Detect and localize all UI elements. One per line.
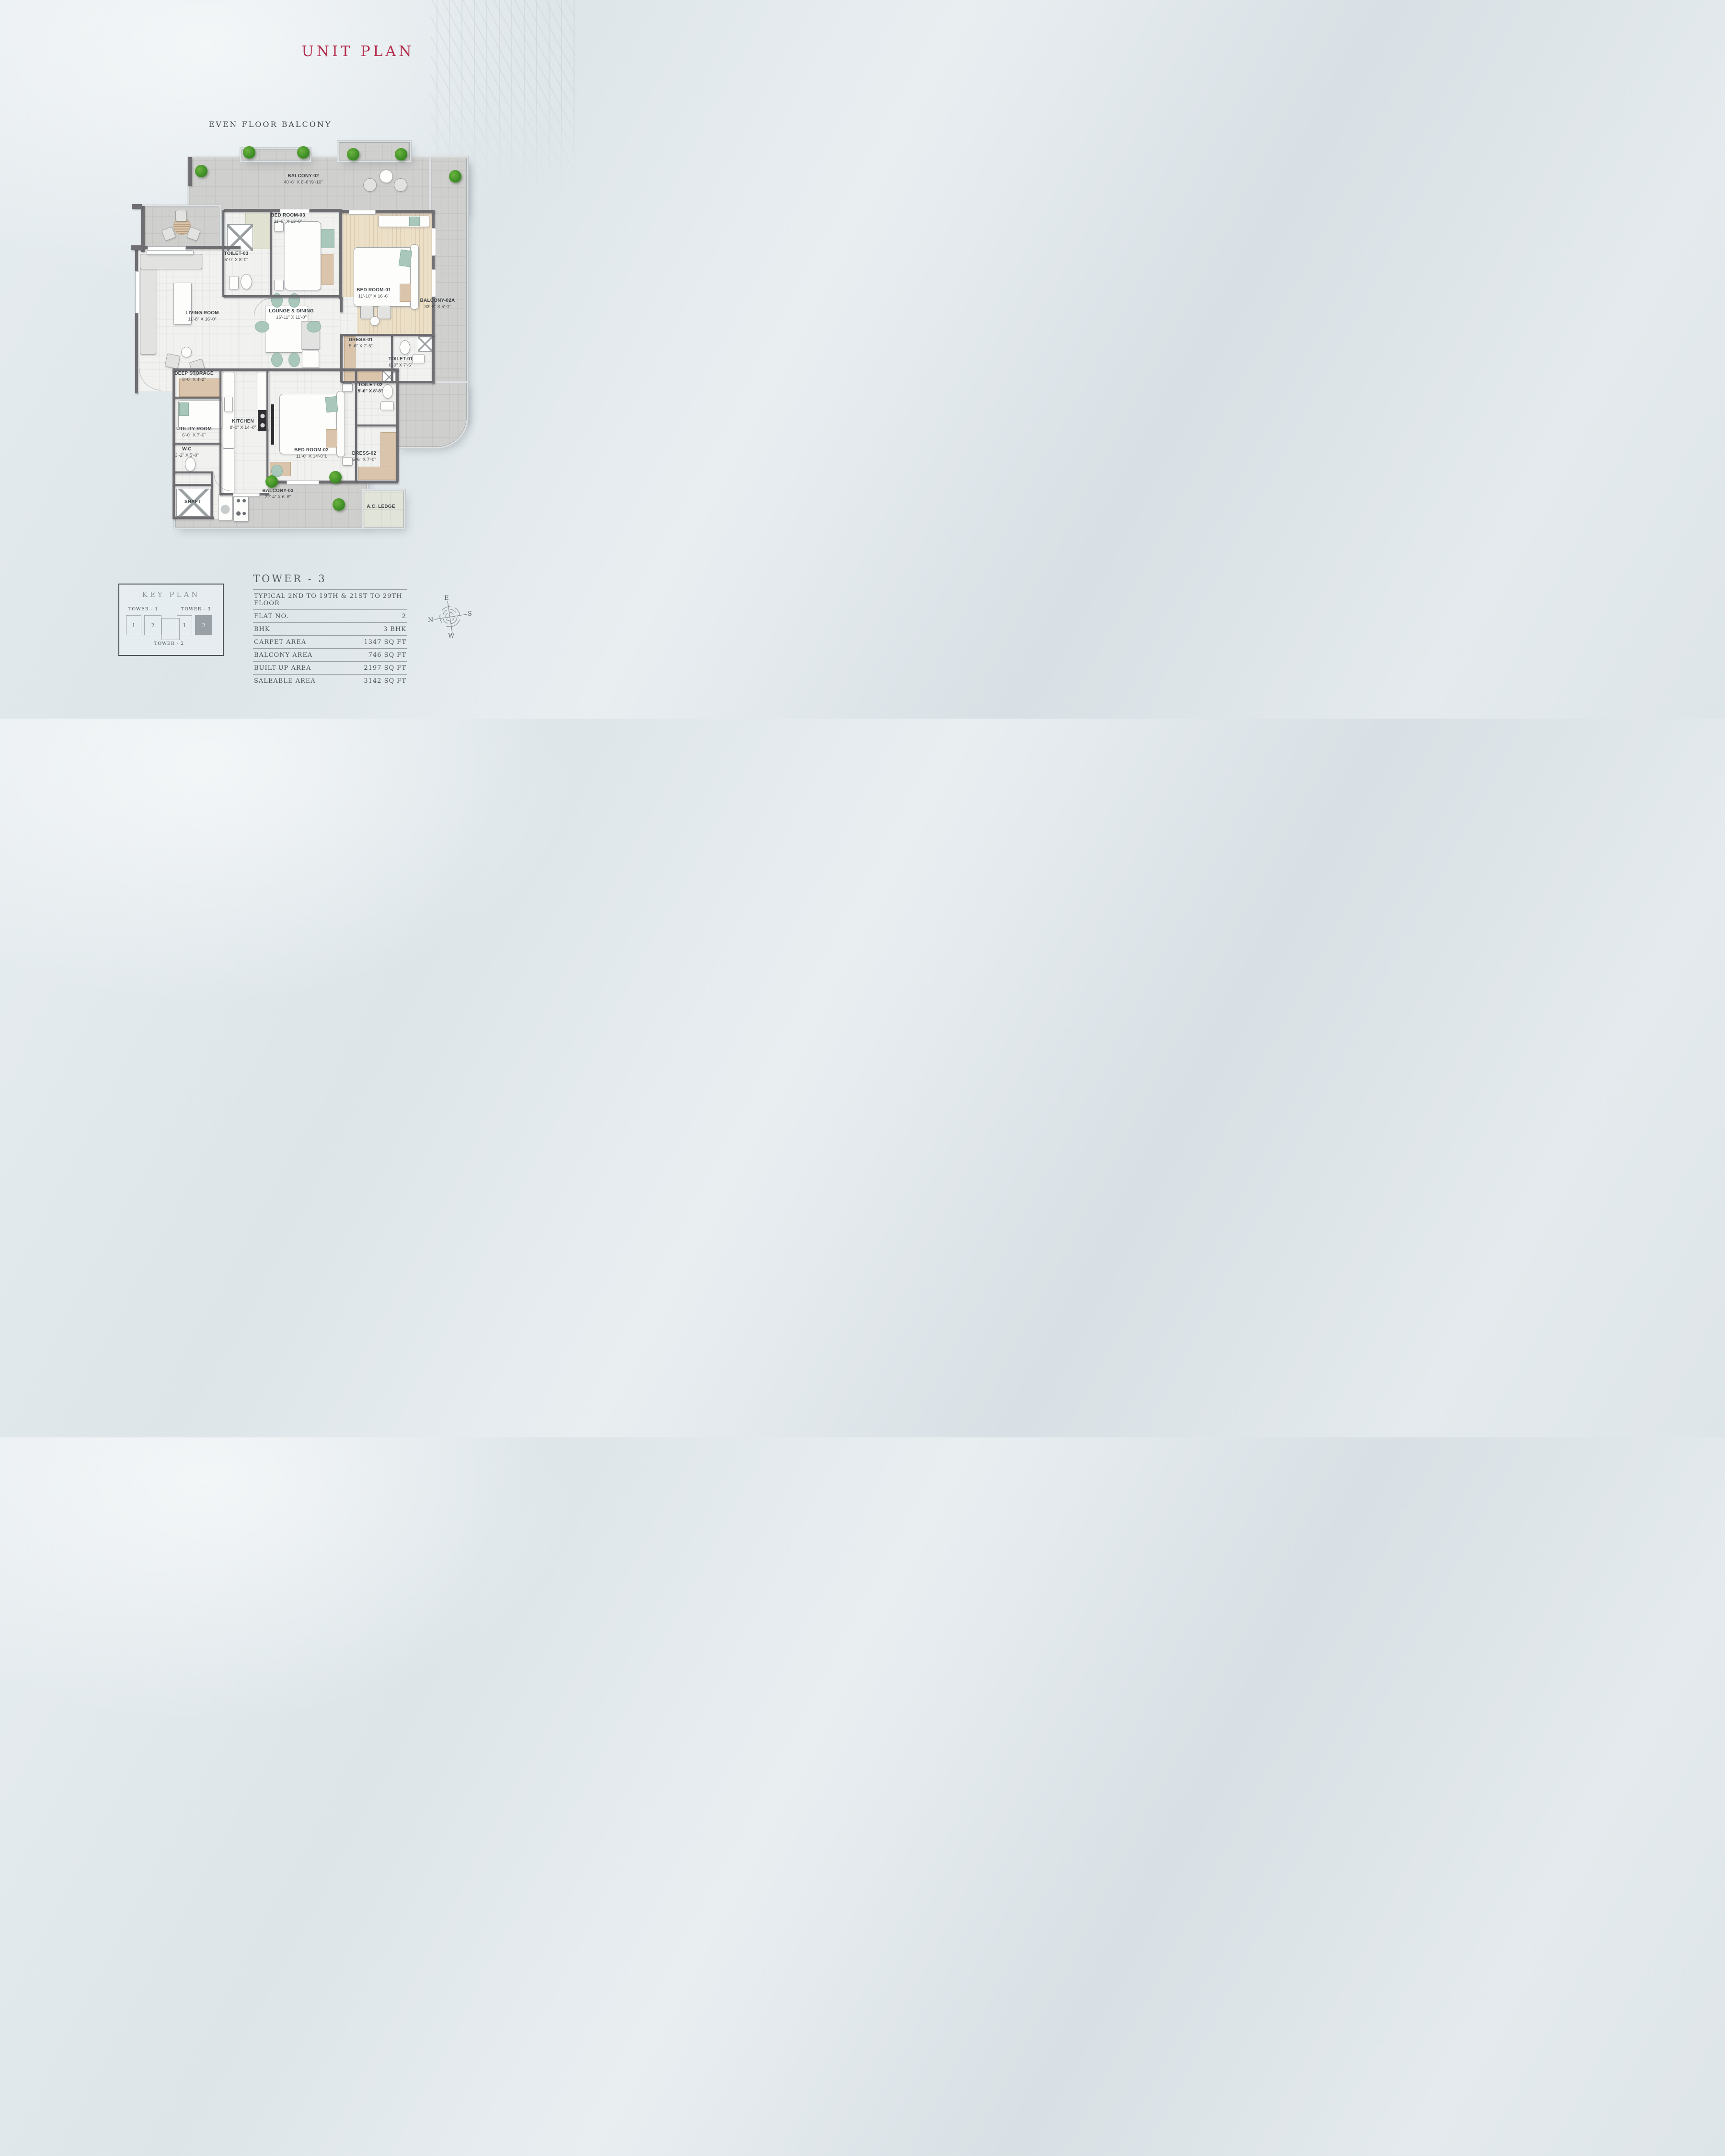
key-plan-tower-3-label: TOWER - 3 bbox=[181, 607, 211, 612]
table-row: TYPICAL 2ND TO 19TH & 21ST TO 29TH FLOOR bbox=[253, 589, 407, 609]
room-label-toilet-03: TOILET-035'-0" X 8'-0" bbox=[224, 251, 248, 263]
plant bbox=[329, 471, 342, 483]
key-plan-tower1-unit1: 1 bbox=[126, 615, 141, 635]
wall bbox=[173, 516, 214, 519]
wall bbox=[356, 424, 397, 426]
room-label-dress-01: DRESS-015'-6" X 7'-5" bbox=[349, 337, 373, 349]
room-label-bedroom-03: BED ROOM-0311'-0" X 13'-0" bbox=[271, 213, 305, 224]
wall bbox=[132, 204, 142, 209]
balcony-02-floor bbox=[189, 158, 466, 213]
unit-plan-page: { "page": { "title": "UNIT PLAN", "balco… bbox=[0, 0, 575, 719]
window bbox=[432, 228, 436, 256]
kitchen-sink bbox=[224, 397, 233, 412]
nightstand bbox=[342, 457, 353, 466]
plant bbox=[297, 146, 310, 159]
room-label-bedroom-01: BED ROOM-0111'-10" X 16'-6" bbox=[356, 287, 391, 299]
key-plan: KEY PLAN TOWER - 1 TOWER - 3 TOWER - 2 1… bbox=[118, 584, 224, 656]
wc-toilet bbox=[185, 457, 195, 471]
key-plan-tower1-unit2: 2 bbox=[144, 615, 161, 635]
table-row: FLAT NO.2 bbox=[253, 609, 407, 622]
wall bbox=[341, 334, 435, 336]
room-label-dress-02: DRESS-025'-6" X 7'-0" bbox=[352, 451, 377, 462]
pillow bbox=[326, 429, 337, 447]
table-row: SALEABLE AREA3142 SQ FT bbox=[253, 674, 407, 687]
sofa-sectional bbox=[140, 266, 156, 355]
wall bbox=[131, 245, 143, 250]
plant bbox=[395, 148, 407, 161]
window bbox=[349, 210, 376, 215]
room-label-shaft: SHAFT bbox=[184, 499, 201, 505]
side-table bbox=[370, 316, 379, 326]
room-label-wc: W.C3'-2" X 5'-0" bbox=[175, 447, 198, 458]
room-label-balcony-02: BALCONY-0240'-6" X 6'-6"/9'-10" bbox=[284, 173, 323, 185]
compass-icon: E S W N bbox=[428, 594, 472, 638]
wall bbox=[173, 471, 213, 473]
armchair bbox=[378, 306, 391, 319]
compass-south: S bbox=[468, 610, 472, 618]
key-plan-tower-2-label: TOWER - 2 bbox=[154, 641, 184, 646]
room-label-toilet-02: TOILET-025'-6" X 8'-8" bbox=[358, 382, 383, 394]
tower-title: TOWER - 3 bbox=[253, 573, 407, 585]
room-label-utility-room: UTILITY ROOM6'-0" X 7'-0" bbox=[176, 426, 212, 438]
wall bbox=[224, 295, 341, 298]
plant bbox=[333, 498, 345, 511]
plant bbox=[243, 146, 255, 159]
room-label-living-room: LIVING ROOM11'-8" X 16'-0" bbox=[185, 310, 218, 322]
wall bbox=[266, 369, 268, 482]
outdoor-chair bbox=[394, 178, 407, 192]
wall bbox=[211, 471, 213, 518]
room-label-lounge-dining: LOUNGE & DINING16'-11" X 11'-0" bbox=[269, 309, 314, 320]
window bbox=[287, 481, 319, 485]
cooktop-hob bbox=[258, 410, 267, 431]
plant bbox=[449, 170, 461, 183]
wall bbox=[188, 157, 192, 186]
sofa-sectional bbox=[140, 254, 202, 269]
room-label-deep-storage: DEEP STORAGE6'-0" X 4'-2" bbox=[174, 371, 214, 382]
outdoor-chair bbox=[363, 178, 377, 192]
dining-chair bbox=[288, 353, 300, 367]
wardrobe bbox=[358, 467, 397, 480]
washing-machine bbox=[218, 494, 232, 520]
room-label-bedroom-02: BED ROOM-0211'-0" X 14'-0"1 bbox=[294, 447, 329, 459]
compass-east: E bbox=[444, 595, 449, 602]
floor-plan: BALCONY-0240'-6" X 6'-6"/9'-10" BED ROOM… bbox=[120, 130, 474, 533]
bench-cushion bbox=[409, 217, 420, 226]
dining-chair bbox=[255, 321, 269, 333]
table-row: BUILT-UP AREA2197 SQ FT bbox=[253, 661, 407, 674]
plant bbox=[265, 475, 278, 488]
side-table bbox=[181, 347, 192, 357]
table-row: CARPET AREA1347 SQ FT bbox=[253, 635, 407, 648]
wall bbox=[340, 297, 343, 312]
wall bbox=[173, 484, 213, 486]
wash-basin bbox=[380, 401, 394, 410]
wc-toilet bbox=[382, 384, 393, 399]
key-plan-title: KEY PLAN bbox=[119, 590, 223, 599]
nightstand bbox=[342, 383, 353, 392]
storage-cabinet bbox=[302, 351, 319, 368]
balcony-corner-floor bbox=[398, 383, 466, 447]
room-label-balcony-02a: BALCONY-02A33'-6" X 5'-0" bbox=[420, 298, 455, 310]
room-label-toilet-01: TOILET-016'-0" X 7'-5" bbox=[388, 356, 413, 368]
table-row: BALCONY AREA746 SQ FT bbox=[253, 648, 407, 661]
pillow bbox=[325, 396, 338, 413]
armchair bbox=[164, 353, 180, 369]
shower bbox=[418, 336, 432, 352]
window bbox=[135, 271, 139, 313]
nightstand bbox=[274, 280, 284, 290]
wc-toilet bbox=[241, 274, 252, 289]
wall bbox=[270, 212, 272, 297]
dining-chair bbox=[307, 321, 321, 333]
room-label-kitchen: KITCHEN8'-0" X 14'-0" bbox=[230, 419, 256, 430]
wash-basin bbox=[412, 355, 425, 363]
key-plan-tower3-unit1: 1 bbox=[177, 615, 192, 635]
room-label-balcony-03: BALCONY-0322'-4" X 6'-6" bbox=[262, 488, 293, 500]
plant bbox=[195, 165, 207, 177]
dining-chair bbox=[271, 353, 283, 367]
window bbox=[432, 269, 436, 297]
pillow bbox=[400, 284, 411, 302]
wall bbox=[135, 246, 138, 393]
key-plan-tower-1-label: TOWER - 1 bbox=[128, 607, 158, 612]
pillow bbox=[179, 402, 189, 416]
wall bbox=[173, 397, 221, 399]
gas-stove bbox=[233, 493, 249, 522]
window bbox=[233, 493, 260, 497]
window bbox=[148, 246, 186, 251]
pillow bbox=[399, 249, 412, 267]
bed-headboard bbox=[336, 391, 345, 457]
wall bbox=[340, 334, 343, 382]
wash-basin bbox=[229, 276, 239, 289]
plant bbox=[347, 148, 359, 161]
page-title: UNIT PLAN bbox=[286, 43, 430, 60]
compass-north: N bbox=[428, 617, 433, 624]
wall bbox=[219, 369, 221, 495]
balcony-02a-floor bbox=[431, 158, 466, 421]
chair bbox=[175, 210, 187, 221]
unit-info-table: TOWER - 3 TYPICAL 2ND TO 19TH & 21ST TO … bbox=[253, 573, 407, 687]
compass-west: W bbox=[448, 632, 455, 638]
wardrobe bbox=[379, 216, 429, 227]
even-floor-balcony-heading: EVEN FLOOR BALCONY bbox=[198, 120, 342, 129]
wardrobe bbox=[321, 254, 333, 285]
key-plan-tower3-unit2-highlighted: 2 bbox=[195, 615, 212, 635]
table-row: BHK3 BHK bbox=[253, 622, 407, 635]
wall bbox=[339, 210, 342, 299]
wc-toilet bbox=[400, 340, 410, 355]
console bbox=[147, 250, 194, 255]
wall bbox=[173, 443, 221, 445]
bed bbox=[285, 221, 321, 290]
tv-panel bbox=[271, 404, 274, 445]
room-label-ac-ledge: A.C. LEDGE bbox=[367, 504, 395, 510]
bench-cushion bbox=[321, 229, 334, 248]
outdoor-table bbox=[379, 170, 393, 183]
